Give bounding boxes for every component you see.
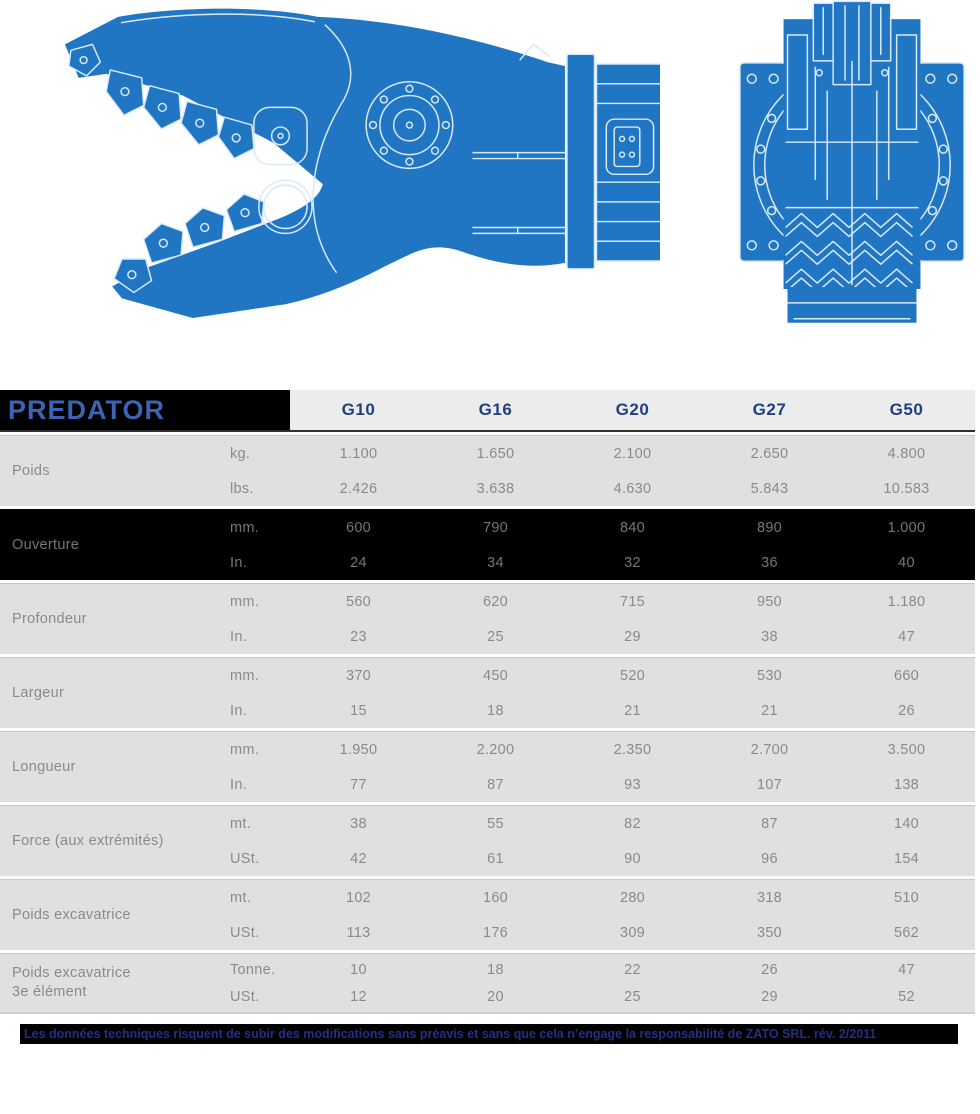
spec-value: 160	[427, 880, 564, 915]
unit-label: In.	[230, 767, 290, 802]
spec-value: 93	[564, 767, 701, 802]
unit-label: kg.	[230, 436, 290, 471]
spec-value: 3.500	[838, 732, 975, 767]
spec-value: 318	[701, 880, 838, 915]
spec-group: Force (aux extrémités) mt.38558287140USt…	[0, 805, 975, 876]
column-header: G27	[701, 390, 838, 430]
unit-label: lbs.	[230, 471, 290, 506]
spec-value: 890	[701, 510, 838, 545]
spec-value: 510	[838, 880, 975, 915]
spec-value: 25	[427, 619, 564, 654]
unit-label: mm.	[230, 510, 290, 545]
table-body: Poids kg.1.1001.6502.1002.6504.800lbs.2.…	[0, 435, 975, 1014]
spec-value: 530	[701, 658, 838, 693]
spec-value: 47	[838, 956, 975, 983]
spec-value: 840	[564, 510, 701, 545]
unit-label: Tonne.	[230, 956, 290, 983]
column-header: G10	[290, 390, 427, 430]
spec-table: PREDATOR G10G16G20G27G50 Poids kg.1.1001…	[0, 390, 975, 1014]
column-header: G50	[838, 390, 975, 430]
spec-group-label-line1: Force (aux extrémités)	[12, 832, 164, 851]
spec-value: 29	[701, 983, 838, 1010]
spec-value: 38	[701, 619, 838, 654]
spec-value: 138	[838, 767, 975, 802]
spec-group: Largeur mm.370450520530660In.1518212126	[0, 657, 975, 728]
spec-value: 4.800	[838, 436, 975, 471]
spec-value: 18	[427, 956, 564, 983]
product-title: PREDATOR	[0, 390, 290, 430]
spec-value: 1.100	[290, 436, 427, 471]
spec-value: 2.650	[701, 436, 838, 471]
spec-group-label-line1: Poids	[12, 462, 50, 481]
spec-value: 715	[564, 584, 701, 619]
spec-value: 38	[290, 806, 427, 841]
spec-value: 87	[427, 767, 564, 802]
unit-label: USt.	[230, 915, 290, 950]
spec-value: 113	[290, 915, 427, 950]
spec-group-label: Poids excavatrice	[0, 880, 230, 950]
spec-value: 40	[838, 545, 975, 580]
spec-value: 280	[564, 880, 701, 915]
spec-group-label-line1: Ouverture	[12, 536, 79, 555]
spec-group-label-line1: Poids excavatrice	[12, 964, 131, 983]
footer-note: Les données techniques risquent de subir…	[20, 1024, 958, 1044]
spec-value: 77	[290, 767, 427, 802]
spec-value: 154	[838, 841, 975, 876]
spec-group-label: Profondeur	[0, 584, 230, 654]
spec-value: 26	[838, 693, 975, 728]
spec-group: Ouverture mm.6007908408901.000In.2434323…	[0, 509, 975, 580]
spec-group-label-line1: Longueur	[12, 758, 76, 777]
spec-value: 1.650	[427, 436, 564, 471]
unit-label: mt.	[230, 880, 290, 915]
spec-group-label-line2: 3e élément	[12, 983, 87, 1002]
table-header: PREDATOR G10G16G20G27G50	[0, 390, 975, 432]
spec-value: 21	[564, 693, 701, 728]
spec-group-label: Force (aux extrémités)	[0, 806, 230, 876]
spec-value: 18	[427, 693, 564, 728]
spec-value: 82	[564, 806, 701, 841]
spec-value: 520	[564, 658, 701, 693]
spec-value: 29	[564, 619, 701, 654]
bottom-plate	[788, 287, 917, 323]
spec-value: 790	[427, 510, 564, 545]
unit-label: mt.	[230, 806, 290, 841]
column-header: G16	[427, 390, 564, 430]
spec-value: 2.100	[564, 436, 701, 471]
spec-group-label: Largeur	[0, 658, 230, 728]
spec-value: 25	[564, 983, 701, 1010]
unit-label: mm.	[230, 584, 290, 619]
spec-group: Longueur mm.1.9502.2002.3502.7003.500In.…	[0, 731, 975, 802]
spec-value: 15	[290, 693, 427, 728]
spec-value: 5.843	[701, 471, 838, 506]
spec-value: 102	[290, 880, 427, 915]
spec-group-label-line1: Poids excavatrice	[12, 906, 131, 925]
spec-group: Poids excavatrice 3e élément Tonne.10182…	[0, 953, 975, 1014]
spec-group: Poids kg.1.1001.6502.1002.6504.800lbs.2.…	[0, 435, 975, 506]
spec-value: 52	[838, 983, 975, 1010]
spec-group-label: Ouverture	[0, 510, 230, 580]
spec-value: 12	[290, 983, 427, 1010]
spec-value: 47	[838, 619, 975, 654]
spec-value: 370	[290, 658, 427, 693]
spec-value: 10.583	[838, 471, 975, 506]
column-header: G20	[564, 390, 701, 430]
spec-value: 61	[427, 841, 564, 876]
spec-group-label: Longueur	[0, 732, 230, 802]
spec-value: 24	[290, 545, 427, 580]
spec-group: Profondeur mm.5606207159501.180In.232529…	[0, 583, 975, 654]
spec-value: 562	[838, 915, 975, 950]
spec-value: 2.200	[427, 732, 564, 767]
crusher-side-view-drawing	[25, 5, 660, 320]
spec-value: 660	[838, 658, 975, 693]
spec-value: 87	[701, 806, 838, 841]
spec-value: 1.950	[290, 732, 427, 767]
spec-value: 2.700	[701, 732, 838, 767]
spec-value: 20	[427, 983, 564, 1010]
spec-value: 950	[701, 584, 838, 619]
crusher-front-view-drawing	[728, 0, 976, 330]
spec-value: 22	[564, 956, 701, 983]
spec-value: 4.630	[564, 471, 701, 506]
spec-value: 1.180	[838, 584, 975, 619]
spec-value: 26	[701, 956, 838, 983]
unit-label: In.	[230, 545, 290, 580]
spec-group-label-line1: Profondeur	[12, 610, 87, 629]
spec-value: 90	[564, 841, 701, 876]
spec-value: 42	[290, 841, 427, 876]
unit-label: In.	[230, 693, 290, 728]
spec-value: 96	[701, 841, 838, 876]
spec-value: 10	[290, 956, 427, 983]
unit-label: USt.	[230, 983, 290, 1010]
spec-group-label: Poids	[0, 436, 230, 506]
spec-value: 55	[427, 806, 564, 841]
spec-value: 350	[701, 915, 838, 950]
spec-value: 2.426	[290, 471, 427, 506]
spec-group-label: Poids excavatrice 3e élément	[0, 956, 230, 1010]
spec-group-label-line1: Largeur	[12, 684, 64, 703]
spec-value: 560	[290, 584, 427, 619]
spec-value: 620	[427, 584, 564, 619]
unit-label: USt.	[230, 841, 290, 876]
spec-value: 32	[564, 545, 701, 580]
spec-value: 140	[838, 806, 975, 841]
spec-value: 107	[701, 767, 838, 802]
spec-value: 1.000	[838, 510, 975, 545]
spec-value: 600	[290, 510, 427, 545]
spec-value: 450	[427, 658, 564, 693]
spec-value: 34	[427, 545, 564, 580]
spec-value: 176	[427, 915, 564, 950]
unit-label: mm.	[230, 658, 290, 693]
spec-value: 2.350	[564, 732, 701, 767]
spec-group: Poids excavatrice mt.102160280318510USt.…	[0, 879, 975, 950]
mounting-bracket	[567, 54, 660, 269]
spec-value: 36	[701, 545, 838, 580]
spec-value: 23	[290, 619, 427, 654]
unit-label: mm.	[230, 732, 290, 767]
unit-label: In.	[230, 619, 290, 654]
spec-value: 309	[564, 915, 701, 950]
spec-value: 21	[701, 693, 838, 728]
spec-value: 3.638	[427, 471, 564, 506]
spec-sheet-page: PREDATOR G10G16G20G27G50 Poids kg.1.1001…	[0, 0, 980, 1114]
